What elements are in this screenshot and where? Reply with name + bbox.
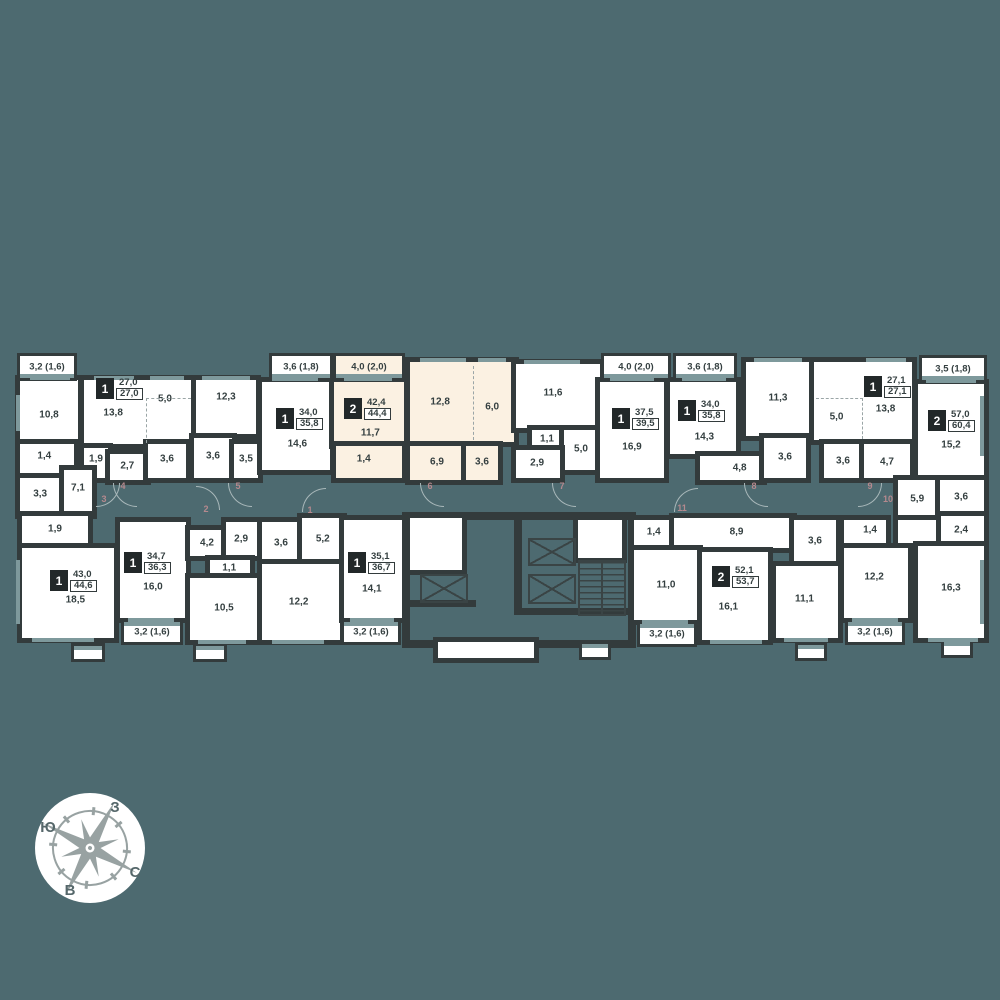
room-area-label: 4,8: [733, 462, 747, 473]
living-area: 34,7: [144, 552, 171, 562]
room-3-6[interactable]: 3,6: [262, 522, 300, 562]
total-area: 35,8: [296, 418, 323, 430]
total-area: 35,8: [698, 410, 725, 422]
room-area-label: 18,5: [66, 595, 85, 606]
apartment-badge[interactable]: 134,035,8: [678, 400, 725, 422]
balcony: 3,6 (1,8): [272, 356, 330, 378]
rooms-count: 1: [348, 552, 366, 573]
balcony: 4,0 (2,0): [604, 356, 668, 378]
apartment-badge[interactable]: 135,136,7: [348, 552, 395, 574]
room-area-label: 2,4: [954, 524, 968, 535]
window: [610, 377, 654, 381]
total-area: 44,4: [364, 408, 391, 420]
corridor-flat-number: 7: [559, 481, 564, 491]
window: [272, 640, 324, 644]
apartment-badge[interactable]: 252,153,7: [712, 566, 759, 588]
area-values: 35,136,7: [368, 552, 395, 574]
corridor-flat-number: 8: [751, 481, 756, 491]
room-10-5[interactable]: 10,5: [190, 578, 258, 640]
room-2-4[interactable]: 2,4: [940, 516, 984, 542]
room-3-6[interactable]: 3,6: [764, 438, 806, 478]
elevator-shaft: [420, 574, 468, 603]
room-1-4[interactable]: 1,4: [844, 520, 886, 544]
balcony-glazing: [848, 622, 902, 626]
window: [710, 640, 762, 644]
balcony-glazing: [344, 622, 398, 626]
room-area-label: 2,9: [530, 457, 544, 468]
room-1-1[interactable]: 1,1: [210, 560, 250, 576]
room-area-label: 14,6: [288, 438, 307, 449]
room-1-9[interactable]: 1,9: [22, 516, 88, 544]
room-area-label: 1,4: [647, 526, 661, 537]
room-3-6[interactable]: 3,6: [194, 438, 232, 478]
room-area-label: 11,6: [543, 387, 562, 398]
area-values: 57,060,4: [948, 410, 975, 432]
compass-label-west: З: [110, 799, 119, 816]
window: [344, 377, 392, 381]
balcony-glazing: [798, 645, 824, 649]
rooms-count: 1: [864, 376, 882, 397]
room-18-5[interactable]: 18,5: [22, 548, 114, 638]
window: [420, 358, 466, 362]
balcony-area-label: 4,0 (2,0): [351, 362, 386, 373]
area-values: 43,044,6: [70, 570, 97, 592]
room-area-label: 1,9: [89, 453, 103, 464]
room-11-3[interactable]: 11,3: [746, 362, 810, 436]
balcony: 3,2 (1,6): [640, 624, 694, 644]
room-11-0[interactable]: 11,0: [634, 550, 698, 620]
room-area-label: 2,9: [234, 534, 248, 545]
rooms-count: 2: [712, 566, 730, 587]
rooms-count: 1: [50, 570, 68, 591]
rooms-count: 1: [612, 408, 630, 429]
window: [478, 358, 506, 362]
apartment-badge[interactable]: 134,035,8: [276, 408, 323, 430]
window: [16, 560, 20, 624]
rooms-count: 1: [96, 378, 114, 399]
elevator-shaft: [528, 538, 576, 566]
corridor-flat-number: 2: [203, 504, 208, 514]
living-area: 43,0: [70, 570, 97, 580]
apartment-badge[interactable]: 127,027,0: [96, 378, 143, 400]
room-area-label: 5,2: [316, 534, 330, 545]
room-area-label: 1,4: [37, 451, 51, 462]
apartment-badge[interactable]: 242,444,4: [344, 398, 391, 420]
room-area-label: 3,6: [160, 454, 174, 465]
corridor-flat-number: 5: [235, 481, 240, 491]
area-values: 27,127,1: [884, 376, 911, 398]
room-area-label: 3,6: [778, 452, 792, 463]
kitchen-zone-dashed: [146, 398, 191, 443]
living-area: 52,1: [732, 566, 759, 576]
area-values: 37,539,5: [632, 408, 659, 430]
room-area-label: 6,0: [485, 401, 499, 412]
room-area-label: 12,2: [864, 572, 883, 583]
room-2-7[interactable]: 2,7: [110, 454, 146, 480]
room-area-label: 11,1: [795, 594, 814, 605]
rooms-count: 1: [276, 408, 294, 429]
window: [642, 620, 688, 624]
room-16-9[interactable]: 16,9: [600, 382, 664, 478]
room-2-9[interactable]: 2,9: [226, 522, 262, 556]
total-area: 60,4: [948, 420, 975, 432]
window: [926, 379, 976, 383]
room-area-label: 13,8: [103, 408, 122, 419]
area-values: 42,444,4: [364, 398, 391, 420]
total-area: 36,3: [144, 562, 171, 574]
room-area-label: 6,9: [430, 457, 444, 468]
total-area: 53,7: [732, 576, 759, 588]
room-area-label: 11,7: [361, 427, 380, 438]
room-area-label: 3,3: [33, 489, 47, 500]
area-values: 34,035,8: [296, 408, 323, 430]
facade-stub: [582, 644, 608, 657]
room-area-label: 11,3: [769, 392, 788, 403]
window: [784, 638, 828, 642]
balcony: 3,2 (1,6): [20, 356, 74, 378]
window: [198, 640, 246, 644]
room-area-label: 14,3: [695, 431, 714, 442]
area-values: 34,035,8: [698, 400, 725, 422]
area-values: 34,736,3: [144, 552, 171, 574]
room-area-label: 4,2: [200, 538, 214, 549]
room-5-0[interactable]: 5,0: [564, 430, 598, 470]
facade-stub: [944, 642, 970, 655]
living-area: 35,1: [368, 552, 395, 562]
balcony: 4,0 (2,0): [336, 356, 402, 378]
room-area-label: 12,3: [216, 392, 235, 403]
room-area-label: 10,5: [214, 602, 233, 613]
window: [524, 360, 580, 364]
balcony: 3,6 (1,8): [676, 356, 734, 378]
living-area: 57,0: [948, 410, 975, 420]
facade-stub: [74, 646, 102, 659]
room-area-label: 14,1: [362, 583, 381, 594]
corridor-flat-number: 10: [883, 494, 893, 504]
compass-rose: З Ю С В: [25, 786, 155, 916]
room-3-6[interactable]: 3,6: [794, 520, 836, 562]
room-area-label: 8,9: [730, 527, 744, 538]
room-1-1[interactable]: 1,1: [532, 430, 562, 448]
balcony-glazing: [640, 624, 694, 628]
total-area: 39,5: [632, 418, 659, 430]
room-6-9[interactable]: 6,9: [410, 446, 464, 480]
rooms-count: 1: [124, 552, 142, 573]
rooms-count: 1: [678, 400, 696, 421]
window: [866, 358, 906, 362]
window: [928, 638, 978, 642]
window: [32, 638, 94, 642]
room-area-label: 3,6: [206, 451, 220, 462]
room-7-1[interactable]: 7,1: [64, 470, 92, 514]
room-area-label: 3,6: [475, 457, 489, 468]
facade-stub: [196, 646, 224, 659]
room-10-8[interactable]: 10,8: [20, 380, 78, 442]
corridor-flat-number: 9: [867, 481, 872, 491]
room-area-label: 5,9: [910, 493, 924, 504]
balcony: 3,2 (1,6): [124, 622, 180, 642]
total-area: 36,7: [368, 562, 395, 574]
balcony-glazing: [582, 644, 608, 648]
room-4-7[interactable]: 4,7: [864, 444, 910, 478]
window: [150, 376, 184, 380]
wall-segment: [402, 512, 410, 648]
room-12-3[interactable]: 12,3: [196, 380, 256, 434]
room-4-2[interactable]: 4,2: [190, 530, 224, 556]
window: [16, 395, 20, 431]
rooms-count: 2: [928, 410, 946, 431]
compass-label-east: В: [65, 882, 76, 899]
room-12-2[interactable]: 12,2: [844, 548, 908, 618]
living-area: 27,0: [116, 378, 143, 388]
room-3-3[interactable]: 3,3: [20, 478, 62, 514]
balcony-area-label: 3,6 (1,8): [687, 362, 722, 373]
living-area: 34,0: [296, 408, 323, 418]
room-16-3[interactable]: 16,3: [918, 546, 984, 638]
balcony-glazing: [944, 642, 970, 646]
balcony: 3,2 (1,6): [344, 622, 398, 642]
window: [852, 618, 898, 622]
room-3-6[interactable]: 3,6: [148, 444, 186, 478]
corridor-flat-number: 1: [307, 505, 312, 515]
room-area-label: 12,2: [289, 597, 308, 608]
window: [980, 560, 984, 624]
balcony-area-label: 3,6 (1,8): [283, 362, 318, 373]
window: [980, 396, 984, 456]
apartment-badge[interactable]: 257,060,4: [928, 410, 975, 432]
room-11-1[interactable]: 11,1: [776, 566, 838, 638]
balcony-area-label: 3,2 (1,6): [29, 362, 64, 373]
living-area: 27,1: [884, 376, 911, 386]
corridor-flat-number: 11: [677, 503, 687, 513]
area-values: 27,027,0: [116, 378, 143, 400]
room-1-4[interactable]: 1,4: [336, 446, 402, 478]
balcony: 3,2 (1,6): [848, 622, 902, 642]
room-area-label: 16,1: [719, 601, 738, 612]
total-area: 44,6: [70, 580, 97, 592]
room-2-9[interactable]: 2,9: [516, 450, 560, 478]
balcony-glazing: [196, 646, 224, 650]
room-area-label: 1,1: [222, 563, 236, 574]
balcony-area-label: 3,2 (1,6): [134, 627, 169, 638]
area-values: 52,153,7: [732, 566, 759, 588]
wall-segment: [514, 512, 522, 608]
door-swing-arc: [302, 488, 326, 512]
room-area-label: 16,9: [622, 442, 641, 453]
room-5-2[interactable]: 5,2: [302, 518, 342, 560]
living-area: 34,0: [698, 400, 725, 410]
corridor-flat-number: 4: [120, 481, 125, 491]
room[interactable]: [410, 518, 462, 570]
room-area-label: 4,7: [880, 456, 894, 467]
balcony-area-label: 3,2 (1,6): [353, 627, 388, 638]
facade-stub: [798, 645, 824, 658]
balcony: 3,5 (1,8): [922, 358, 984, 380]
room[interactable]: [898, 520, 936, 544]
room-11-6[interactable]: 11,6: [516, 364, 600, 428]
room-area-label: 2,7: [120, 460, 134, 471]
room-area-label: 3,6: [954, 492, 968, 503]
room-area-label: 15,2: [941, 439, 960, 450]
room-area-label: 12,8: [430, 397, 449, 408]
room-area-label: 10,8: [39, 409, 58, 420]
room-8-9[interactable]: 8,9: [674, 518, 792, 548]
room-12-8[interactable]: 12,86,0: [410, 362, 514, 442]
room-area-label: 5,0: [574, 444, 588, 455]
apartment-badge[interactable]: 134,736,3: [124, 552, 171, 574]
room-area-label: 11,0: [657, 580, 676, 591]
room-area-label: 1,4: [863, 525, 877, 536]
window: [350, 618, 394, 622]
balcony-glazing: [124, 622, 180, 626]
window: [128, 618, 174, 622]
living-area: 42,4: [364, 398, 391, 408]
room-area-label: 1,9: [48, 524, 62, 535]
balcony-area-label: 3,2 (1,6): [649, 629, 684, 640]
kitchen-zone-dashed: [816, 398, 863, 439]
room-area-label: 16,3: [941, 583, 960, 594]
room-5-9[interactable]: 5,9: [898, 480, 938, 516]
room-3-5[interactable]: 3,5: [234, 444, 258, 478]
room-3-6[interactable]: 3,6: [940, 480, 984, 514]
room-area-label: 7,1: [71, 482, 85, 493]
room-area-label: 3,6: [808, 536, 822, 547]
room-area-label: 3,5: [239, 454, 253, 465]
room-area-label: 3,6: [836, 456, 850, 467]
balcony-area-label: 4,0 (2,0): [618, 362, 653, 373]
room-3-6[interactable]: 3,6: [466, 446, 498, 480]
total-area: 27,0: [116, 388, 143, 400]
window: [272, 377, 318, 381]
living-area: 37,5: [632, 408, 659, 418]
apartment-badge[interactable]: 127,127,1: [864, 376, 911, 398]
room-4-8[interactable]: 4,8: [700, 456, 762, 480]
room-3-6[interactable]: 3,6: [824, 444, 862, 478]
room[interactable]: [438, 642, 534, 658]
rooms-count: 2: [344, 398, 362, 419]
room-1-4[interactable]: 1,4: [634, 520, 672, 546]
elevator-shaft: [528, 574, 576, 604]
window: [202, 376, 250, 380]
balcony-glazing: [74, 646, 102, 650]
kitchen-zone-dashed: [473, 366, 475, 440]
room[interactable]: [578, 520, 622, 558]
total-area: 27,1: [884, 386, 911, 398]
room-area-label: 1,1: [540, 434, 554, 445]
room-area-label: 16,0: [143, 582, 162, 593]
compass-label-north: С: [130, 864, 141, 881]
room-area-label: 3,6: [274, 537, 288, 548]
balcony-area-label: 3,2 (1,6): [857, 627, 892, 638]
apartment-badge[interactable]: 137,539,5: [612, 408, 659, 430]
window: [30, 376, 70, 380]
compass-label-south: Ю: [40, 819, 55, 836]
room-12-2[interactable]: 12,2: [262, 564, 340, 640]
corridor-flat-number: 3: [101, 494, 106, 504]
window: [682, 377, 726, 381]
corridor-flat-number: 6: [427, 481, 432, 491]
window: [754, 358, 802, 362]
staircase: [578, 560, 626, 616]
room-area-label: 1,4: [357, 453, 371, 464]
balcony-area-label: 3,5 (1,8): [935, 364, 970, 375]
apartment-badge[interactable]: 143,044,6: [50, 570, 97, 592]
room-area-label: 13,8: [876, 403, 895, 414]
